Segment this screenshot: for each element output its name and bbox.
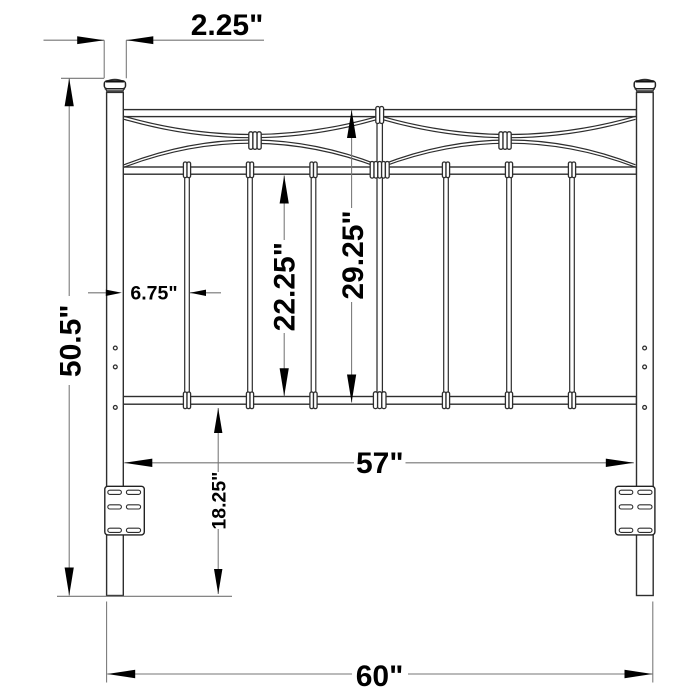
svg-text:50.5": 50.5" — [54, 304, 87, 377]
svg-text:22.25": 22.25" — [269, 242, 302, 331]
svg-text:57": 57" — [356, 447, 404, 480]
svg-text:2.25": 2.25" — [191, 9, 264, 42]
svg-text:29.25": 29.25" — [337, 210, 370, 299]
svg-text:60": 60" — [356, 660, 404, 693]
svg-text:18.25": 18.25" — [208, 472, 230, 530]
svg-text:6.75": 6.75" — [130, 283, 177, 305]
